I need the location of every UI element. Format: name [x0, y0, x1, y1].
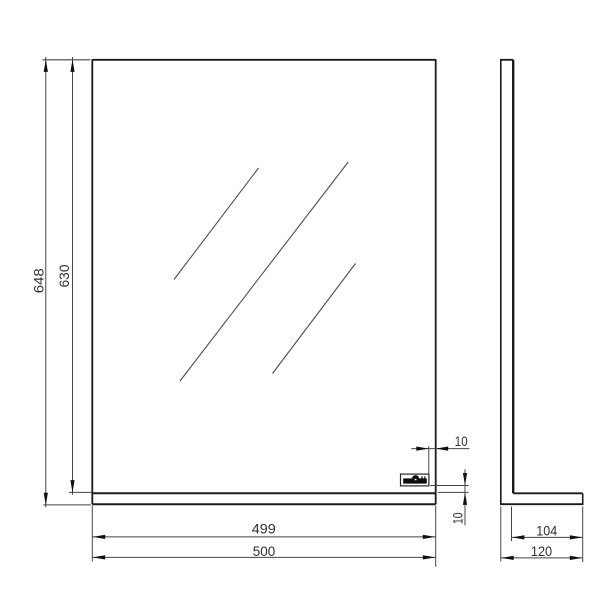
svg-text:648: 648 [30, 268, 46, 293]
svg-text:104: 104 [536, 522, 557, 538]
svg-text:630: 630 [56, 264, 72, 287]
svg-text:10: 10 [450, 512, 466, 524]
svg-text:10: 10 [455, 433, 468, 449]
svg-text:499: 499 [252, 520, 276, 536]
svg-text:120: 120 [531, 543, 552, 559]
svg-text:500: 500 [253, 543, 276, 559]
